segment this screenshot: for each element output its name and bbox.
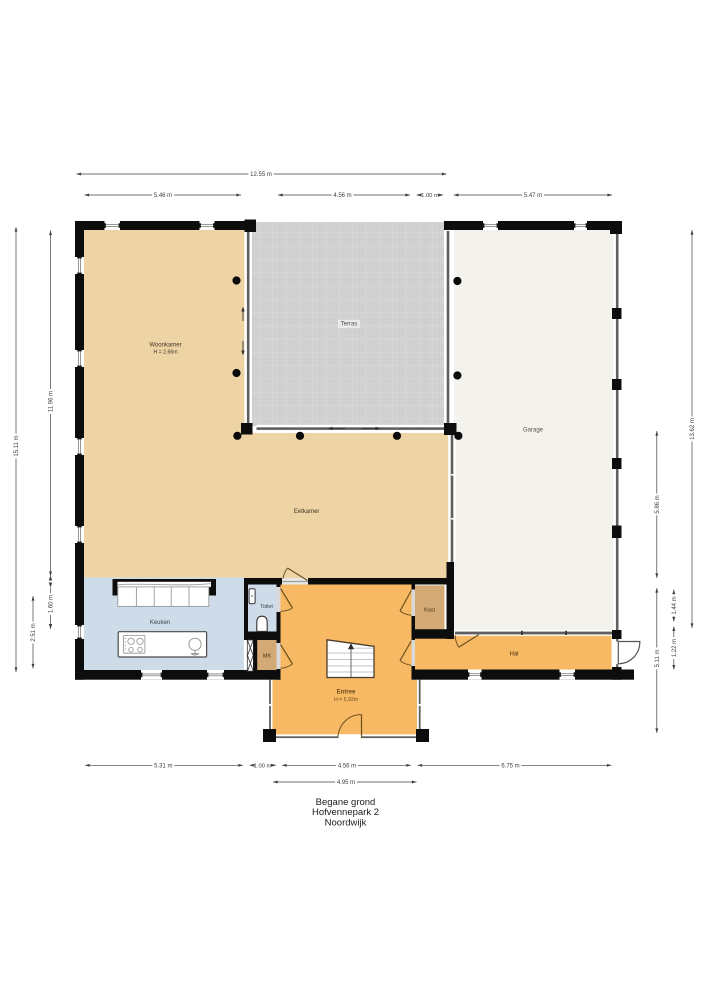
svg-text:Entree: Entree: [337, 690, 356, 696]
svg-text:15.11 m: 15.11 m: [14, 435, 20, 456]
svg-text:H = 2,66m: H = 2,66m: [153, 350, 177, 356]
svg-text:12.55 m: 12.55 m: [250, 172, 272, 178]
svg-text:4.95 m: 4.95 m: [337, 780, 355, 786]
svg-text:5.47 m: 5.47 m: [524, 193, 542, 199]
svg-text:11.96 m: 11.96 m: [49, 391, 55, 412]
svg-text:1.00 m: 1.00 m: [254, 763, 272, 769]
svg-text:4.56 m: 4.56 m: [333, 193, 351, 199]
svg-text:Kast: Kast: [424, 608, 435, 614]
svg-text:5.11 m: 5.11 m: [655, 649, 661, 667]
svg-text:Keuken: Keuken: [150, 620, 170, 626]
svg-text:6.75 m: 6.75 m: [501, 763, 519, 769]
svg-text:5.31 m: 5.31 m: [154, 763, 172, 769]
svg-text:4.56 m: 4.56 m: [338, 763, 356, 769]
svg-text:Terras: Terras: [341, 322, 358, 328]
svg-text:H = 5,92m: H = 5,92m: [334, 697, 358, 703]
svg-text:Toilet: Toilet: [260, 604, 273, 610]
svg-text:Noordwijk: Noordwijk: [325, 817, 367, 828]
svg-text:1.22 m: 1.22 m: [672, 639, 678, 657]
svg-text:Woonkamer: Woonkamer: [149, 343, 181, 349]
svg-text:5.46 m: 5.46 m: [154, 193, 172, 199]
svg-text:1.44 m: 1.44 m: [672, 596, 678, 614]
svg-text:13.62 m: 13.62 m: [690, 418, 696, 440]
svg-text:5.86 m: 5.86 m: [655, 495, 661, 513]
svg-text:Garage: Garage: [523, 428, 544, 434]
svg-text:Hal: Hal: [509, 652, 518, 658]
svg-text:MK: MK: [263, 654, 272, 660]
svg-text:Eetkamer: Eetkamer: [294, 509, 320, 515]
svg-text:1.60 m: 1.60 m: [49, 595, 55, 613]
svg-text:2.51 m: 2.51 m: [31, 623, 37, 641]
svg-text:1.00 m: 1.00 m: [421, 193, 439, 199]
